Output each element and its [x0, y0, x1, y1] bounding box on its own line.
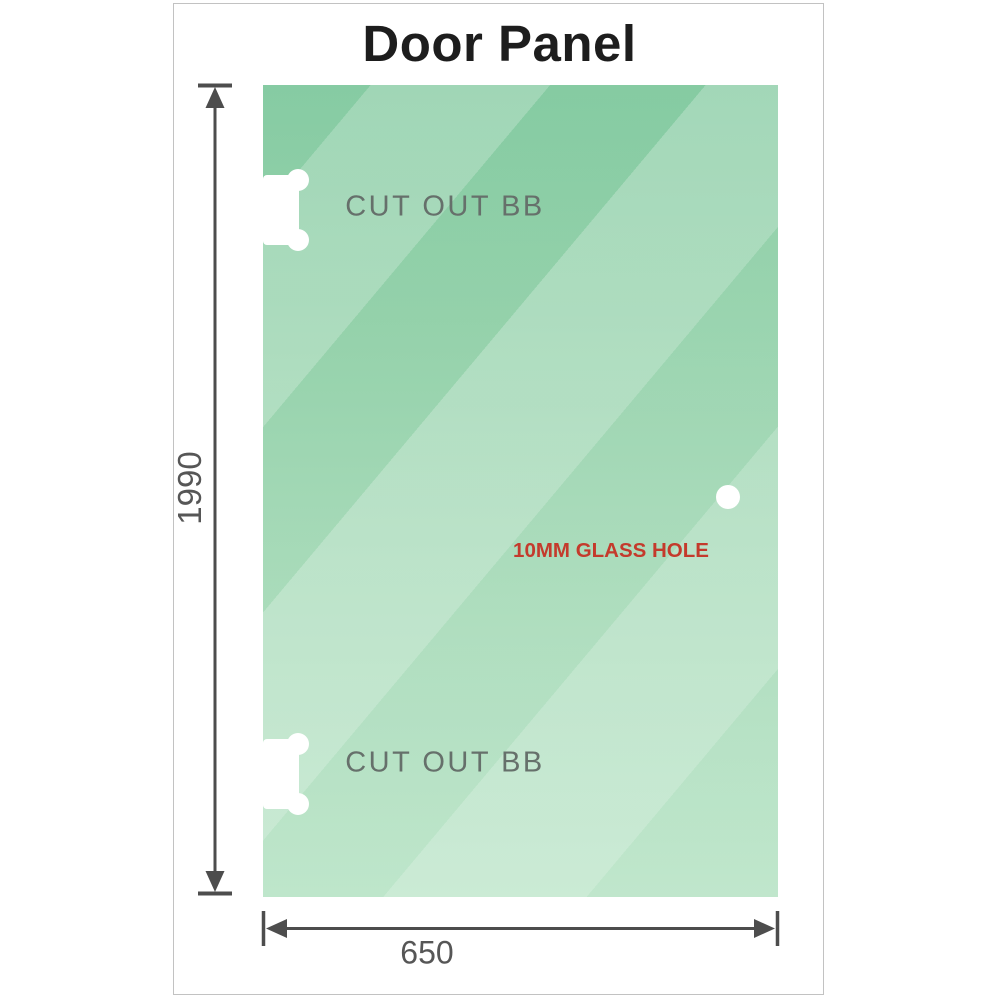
cutout-shape-icon — [263, 732, 311, 816]
glass-hole — [716, 485, 740, 509]
hinge-cutout-bottom — [263, 732, 311, 816]
cutout-label-top: CUT OUT BB — [345, 191, 545, 224]
cutout-shape-icon — [263, 168, 311, 252]
hinge-cutout-top — [263, 168, 311, 252]
diagram-canvas: Door Panel CUT OUT BB CUT OUT BB 10MM GL… — [0, 0, 1000, 1000]
width-dimension-label: 650 — [400, 935, 453, 972]
cutout-label-bottom: CUT OUT BB — [345, 747, 545, 780]
diagram-title: Door Panel — [173, 14, 826, 73]
glass-hole-label: 10MM GLASS HOLE — [513, 539, 709, 563]
height-dimension-label: 1990 — [171, 451, 209, 524]
